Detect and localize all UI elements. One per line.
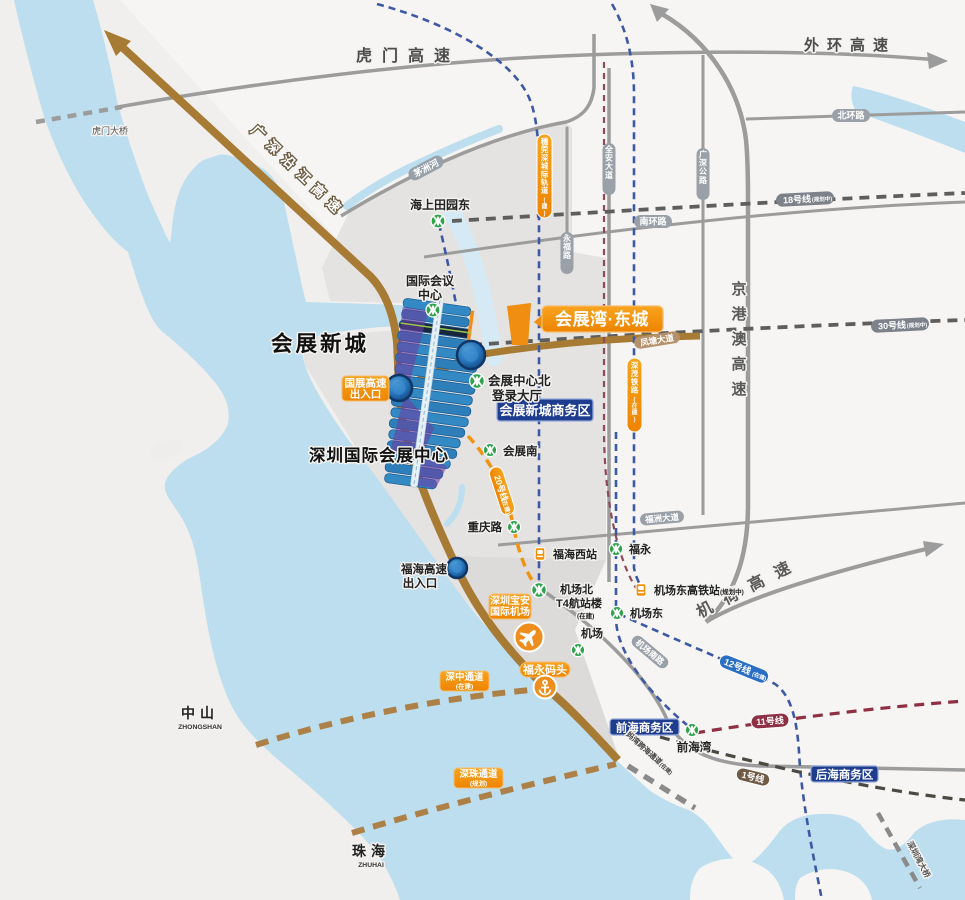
svg-text:福永码头: 福永码头	[522, 663, 567, 677]
svg-text:登录大厅: 登录大厅	[491, 388, 543, 403]
svg-text:穗莞深城际轨道(建): 穗莞深城际轨道(建)	[540, 136, 549, 217]
svg-text:30号线: 30号线	[878, 319, 907, 331]
svg-text:18号线: 18号线	[783, 193, 812, 205]
svg-text:会展湾·东城: 会展湾·东城	[555, 309, 649, 329]
svg-text:全安大道: 全安大道	[604, 144, 614, 180]
svg-text:虎门高速: 虎门高速	[356, 46, 460, 65]
svg-text:京港澳高速: 京港澳高速	[731, 280, 747, 398]
svg-text:会展新城商务区: 会展新城商务区	[499, 403, 590, 418]
svg-text:深中通道: 深中通道	[445, 671, 484, 683]
svg-text:出入口: 出入口	[350, 388, 382, 401]
svg-text:福海西站: 福海西站	[552, 547, 597, 561]
svg-text:永福路: 永福路	[562, 233, 572, 260]
svg-text:重庆路: 重庆路	[468, 520, 503, 534]
svg-text:国际机场: 国际机场	[490, 605, 530, 618]
svg-text:前海湾: 前海湾	[677, 740, 712, 754]
svg-text:珠海: 珠海	[352, 843, 390, 859]
svg-text:机场: 机场	[581, 626, 603, 640]
svg-text:深珠通道: 深珠通道	[459, 768, 498, 780]
svg-text:深圳国际会展中心: 深圳国际会展中心	[309, 445, 449, 465]
svg-text:福海高速: 福海高速	[400, 562, 447, 576]
svg-text:会展中心北: 会展中心北	[488, 373, 551, 388]
svg-text:广深公路: 广深公路	[699, 149, 708, 185]
svg-text:11号线: 11号线	[756, 714, 784, 727]
svg-text:会展南: 会展南	[502, 444, 538, 458]
svg-text:深茂铁路(在建): 深茂铁路(在建)	[630, 360, 639, 423]
svg-text:(在建): (在建)	[577, 611, 594, 620]
svg-text:(规划): (规划)	[470, 779, 487, 788]
svg-text:南环路: 南环路	[639, 216, 667, 227]
svg-text:北环路: 北环路	[837, 110, 865, 121]
svg-text:ZHUHAI: ZHUHAI	[358, 862, 384, 869]
svg-text:(在建): (在建)	[456, 682, 473, 691]
svg-text:福永: 福永	[628, 542, 652, 556]
svg-text:国际会议: 国际会议	[406, 273, 455, 288]
svg-text:ZHONGSHAN: ZHONGSHAN	[178, 724, 222, 731]
svg-text:深圳宝安: 深圳宝安	[490, 594, 530, 607]
svg-text:会展新城: 会展新城	[271, 331, 369, 356]
svg-text:中心: 中心	[418, 287, 442, 302]
svg-text:前海商务区: 前海商务区	[616, 721, 674, 735]
svg-text:出入口: 出入口	[403, 576, 438, 590]
svg-text:外环高速: 外环高速	[803, 36, 896, 54]
svg-text:机场北: 机场北	[560, 582, 593, 596]
svg-text:虎门大桥: 虎门大桥	[92, 125, 128, 136]
svg-text:后海商务区: 后海商务区	[816, 768, 874, 782]
svg-text:中山: 中山	[181, 705, 219, 721]
svg-text:机场东: 机场东	[630, 606, 663, 620]
svg-text:海上田园东: 海上田园东	[410, 197, 470, 212]
svg-text:T4航站楼: T4航站楼	[556, 596, 602, 610]
